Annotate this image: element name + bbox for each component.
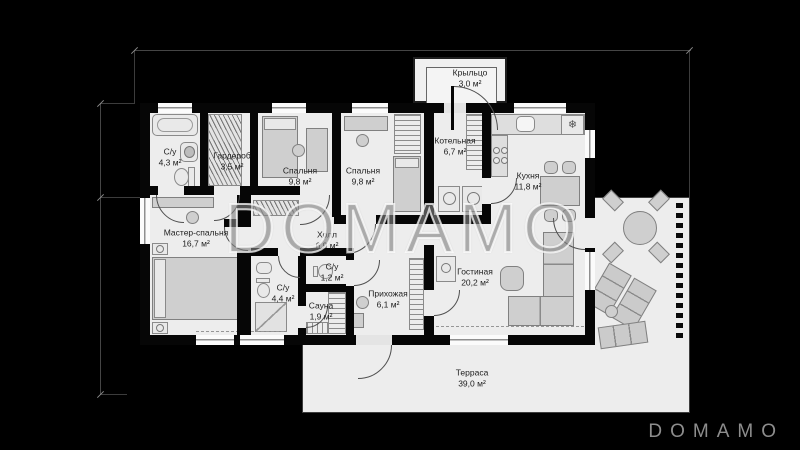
dining-chair (544, 161, 558, 174)
window (240, 335, 284, 345)
hob-burner (493, 147, 500, 154)
room-name: Прихожая (368, 288, 407, 299)
sliding-glass-door (450, 335, 508, 345)
window (140, 198, 150, 244)
window (158, 103, 192, 113)
toilet-bowl (174, 168, 189, 186)
lamp (156, 324, 164, 332)
room-area: 6,1 м² (368, 299, 407, 310)
bed-pillow (264, 118, 296, 130)
extension-line (101, 394, 127, 395)
wardrobe-cabinet (394, 114, 421, 154)
door-opening (424, 290, 434, 316)
room-label-bedroom2: Спальня9,8 м² (346, 165, 380, 186)
room-label-sauna: Сауна1,9 м² (309, 300, 334, 321)
hob-burner (493, 157, 500, 164)
door-arc (358, 345, 392, 379)
room-area: 4,3 м² (159, 157, 182, 168)
room-label-bath2: С/у4,4 м² (272, 282, 295, 303)
sofa-section (508, 296, 574, 326)
floor-transition-line (436, 326, 584, 327)
room-area: 20,2 м² (457, 277, 493, 288)
room-name: С/у (272, 282, 295, 293)
room-area: 1,2 м² (321, 272, 344, 283)
stool (186, 211, 199, 224)
room-label-entry: Прихожая6,1 м² (368, 288, 407, 309)
coffee-table (500, 266, 524, 291)
window (196, 335, 234, 345)
room-name: Котельная (434, 135, 475, 146)
washbasin-bowl (184, 146, 195, 158)
chair (292, 144, 305, 157)
room-name: Гардероб (213, 150, 250, 161)
room-label-wardrobe: Гардероб3,5 м² (213, 150, 250, 171)
stool (356, 296, 369, 309)
terrace-side-table (605, 305, 618, 318)
window (272, 103, 306, 113)
room-area: 39,0 м² (456, 378, 489, 389)
door-opening (298, 306, 306, 328)
room-area: 3,5 м² (213, 161, 250, 172)
hallway-wardrobe (409, 258, 424, 330)
door-opening (356, 335, 392, 345)
room-name: Спальня (283, 165, 317, 176)
room-area: 6,7 м² (434, 146, 475, 157)
window (352, 103, 388, 113)
hob-burner (501, 147, 508, 154)
room-name: Спальня (346, 165, 380, 176)
extension-line (101, 103, 135, 104)
watermark: DOMAMO (218, 188, 590, 268)
room-label-porch: Крыльцо3,0 м² (453, 67, 488, 88)
room-name: Крыльцо (453, 67, 488, 78)
wall (306, 284, 346, 292)
extension-line (101, 197, 141, 198)
window (514, 103, 566, 113)
wall (250, 113, 258, 188)
extension-line (134, 51, 135, 103)
hob-burner (501, 157, 508, 164)
room-label-terrace: Терраса39,0 м² (456, 367, 489, 388)
terrace-round-table (623, 211, 657, 245)
kitchen-counter (491, 135, 508, 177)
extension-line (689, 51, 690, 197)
chair (356, 134, 369, 147)
door-arc (434, 290, 460, 316)
dimension-line-top (134, 50, 691, 51)
room-label-bedroom1: Спальня9,8 м² (283, 165, 317, 186)
toilet (188, 167, 195, 187)
room-name: Кухня (515, 170, 542, 181)
shower-tray (255, 302, 287, 332)
room-area: 4,4 м² (272, 293, 295, 304)
room-label-bath1: С/у4,3 м² (159, 146, 182, 167)
room-label-living: Гостиная20,2 м² (457, 266, 493, 287)
room-area: 9,8 м² (283, 176, 317, 187)
room-name: Терраса (456, 367, 489, 378)
room-area: 3,0 м² (453, 78, 488, 89)
desk (344, 116, 388, 131)
fridge: ❄ (561, 115, 584, 135)
wall (200, 113, 208, 188)
room-label-boiler: Котельная6,7 м² (434, 135, 475, 156)
room-name: С/у (159, 146, 182, 157)
room-name: Сауна (309, 300, 334, 311)
floor-plan-canvas: ❄ (0, 0, 800, 450)
door-arc (454, 86, 498, 130)
bathtub-inner (157, 118, 193, 132)
toilet-bowl (257, 283, 270, 298)
door-opening (158, 186, 184, 195)
dimension-line-left (100, 103, 101, 395)
door-arc (156, 195, 184, 223)
snowflake-icon: ❄ (562, 116, 583, 135)
kitchen-sink (516, 116, 535, 132)
bed-pillow (395, 158, 419, 168)
room-area: 9,8 м² (346, 176, 380, 187)
dining-chair (562, 161, 576, 174)
room-area: 1,9 м² (309, 311, 334, 322)
brand-logo: DOMAMO (648, 421, 784, 443)
window (585, 130, 595, 158)
bed-pillow (154, 259, 166, 318)
terrace-edge-hatch (676, 203, 683, 341)
